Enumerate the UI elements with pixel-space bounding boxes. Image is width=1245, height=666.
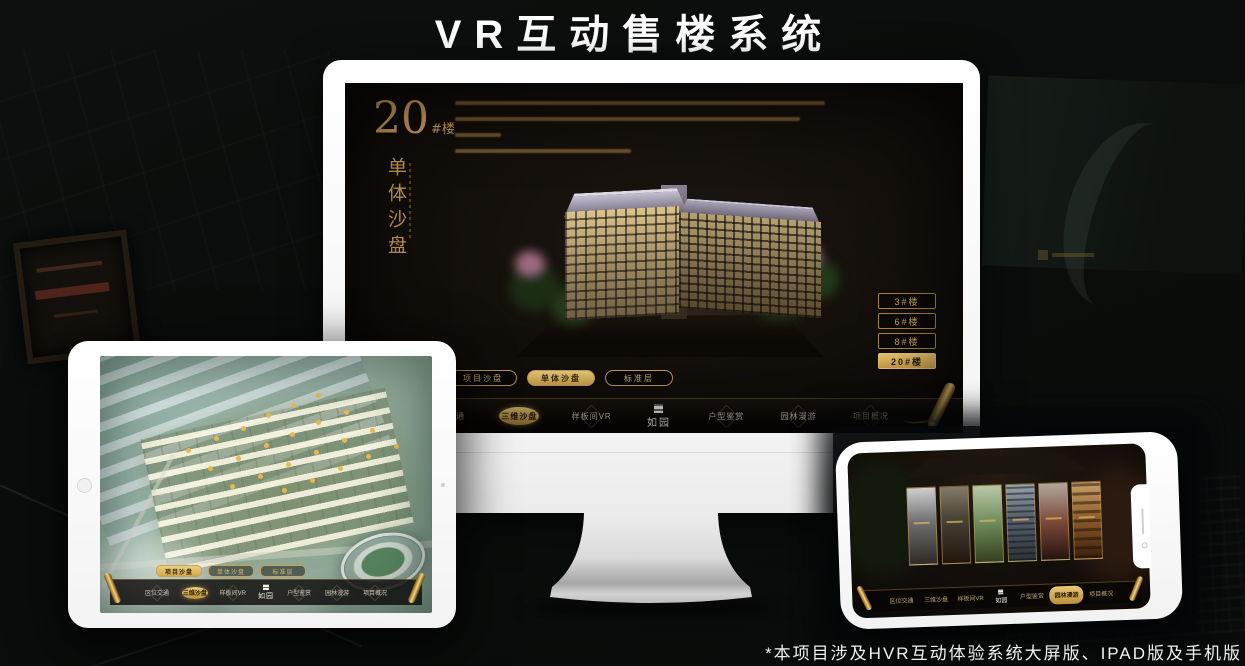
subtab-standard-floor[interactable]: 标准层 bbox=[605, 370, 673, 386]
gallery-panel[interactable] bbox=[1005, 483, 1037, 562]
subtab-single-sandbox[interactable]: 单体沙盘 bbox=[208, 565, 254, 577]
main-nav-bar: 区位交通 三维沙盘 样板间VR 如园 bbox=[860, 580, 1143, 612]
scroll-icon[interactable] bbox=[410, 572, 426, 606]
nav-item-unit-gallery[interactable]: 户型鉴赏 bbox=[694, 401, 758, 431]
nav-item-unit-gallery[interactable]: 户型鉴赏 bbox=[280, 582, 318, 604]
blossom-tree bbox=[515, 251, 545, 277]
building-render bbox=[503, 167, 843, 367]
main-nav-bar: 区位交通 三维沙盘 样板间VR 如园 bbox=[110, 579, 422, 605]
speaker-icon bbox=[1141, 508, 1144, 534]
phone-device: 区位交通 三维沙盘 样板间VR 如园 bbox=[835, 431, 1183, 630]
scroll-icon[interactable] bbox=[858, 585, 873, 613]
scene-gallery bbox=[906, 481, 1103, 566]
nav-item-location[interactable]: 区位交通 bbox=[884, 591, 919, 610]
nav-item-location[interactable]: 区位交通 bbox=[138, 582, 176, 604]
gallery-panel[interactable] bbox=[1038, 482, 1070, 561]
nav-item-3d-sandbox[interactable]: 三维沙盘 bbox=[919, 590, 954, 609]
camera-icon bbox=[1141, 542, 1147, 548]
monitor-stand bbox=[546, 513, 756, 608]
page-title: VR互动售楼系统 bbox=[435, 2, 835, 60]
courtyard-roof-silhouette bbox=[907, 445, 1088, 477]
brand-seal-icon bbox=[999, 589, 1004, 594]
gallery-panel[interactable] bbox=[906, 487, 938, 566]
footnote-text: *本项目涉及HVR互动体验系统大屏版、IPAD版及手机版 bbox=[765, 639, 1242, 664]
stage: VR互动售楼系统 20#楼 单体沙盘 bbox=[0, 0, 1245, 666]
nav-item-garden-roam[interactable]: 园林漫游 bbox=[1049, 585, 1084, 604]
floor-button-6[interactable]: 6#楼 bbox=[878, 313, 936, 329]
nav-item-project-overview[interactable]: 项目概况 bbox=[356, 582, 394, 604]
nav-item-showroom-vr[interactable]: 样板间VR bbox=[953, 588, 988, 607]
brand-seal-icon bbox=[263, 584, 269, 590]
subtab-project-sandbox[interactable]: 项目沙盘 bbox=[449, 370, 517, 386]
nav-item-project-overview[interactable]: 项目概况 bbox=[1084, 584, 1119, 603]
tablet-screen: 项目沙盘 单体沙盘 标准层 区位交通 三维沙盘 样板间VR bbox=[100, 356, 432, 613]
nav-item-3d-sandbox[interactable]: 三维沙盘 bbox=[176, 582, 214, 604]
building-number-suffix: #楼 bbox=[431, 122, 455, 137]
nav-item-garden-roam[interactable]: 园林漫游 bbox=[767, 401, 831, 431]
nav-item-showroom-vr[interactable]: 样板间VR bbox=[560, 401, 624, 431]
subtab-standard-floor[interactable]: 标准层 bbox=[260, 565, 306, 577]
gallery-panel[interactable] bbox=[939, 485, 971, 564]
background-logo-mark bbox=[1038, 250, 1048, 260]
section-title-english-decor bbox=[409, 163, 411, 241]
subtab-single-sandbox[interactable]: 单体沙盘 bbox=[527, 370, 595, 386]
description-text-blurred bbox=[455, 101, 825, 165]
brand-logo[interactable]: 如园 bbox=[988, 589, 1015, 605]
nav-item-garden-roam[interactable]: 园林漫游 bbox=[318, 582, 356, 604]
building-facade bbox=[679, 212, 821, 318]
nav-item-unit-gallery[interactable]: 户型鉴赏 bbox=[1015, 586, 1050, 605]
gallery-panel[interactable] bbox=[1071, 481, 1103, 560]
brand-seal-icon bbox=[654, 404, 663, 413]
sub-tab-group: 项目沙盘 单体沙盘 标准层 bbox=[156, 565, 306, 577]
brand-logo[interactable]: 如园 bbox=[632, 404, 686, 429]
sub-tab-group: 项目沙盘 单体沙盘 标准层 bbox=[449, 370, 673, 386]
building-facade bbox=[565, 206, 679, 320]
nav-item-3d-sandbox[interactable]: 三维沙盘 bbox=[487, 401, 551, 431]
building-number: 20 bbox=[373, 93, 429, 144]
brand-logo[interactable]: 如园 bbox=[252, 584, 280, 601]
scroll-icon[interactable] bbox=[1130, 575, 1145, 603]
building-title: 20#楼 bbox=[373, 97, 455, 141]
home-button[interactable] bbox=[77, 478, 92, 493]
floor-button-group: 3#楼 6#楼 8#楼 20#楼 bbox=[878, 293, 936, 369]
phone-notch bbox=[1130, 484, 1151, 569]
nav-item-showroom-vr[interactable]: 样板间VR bbox=[214, 582, 252, 604]
floor-button-3[interactable]: 3#楼 bbox=[878, 293, 936, 309]
section-title-vertical: 单体沙盘 bbox=[383, 157, 410, 261]
scroll-icon[interactable] bbox=[106, 572, 122, 606]
tablet-device: 项目沙盘 单体沙盘 标准层 区位交通 三维沙盘 样板间VR bbox=[68, 341, 456, 628]
subtab-project-sandbox[interactable]: 项目沙盘 bbox=[156, 565, 202, 577]
floor-button-8[interactable]: 8#楼 bbox=[878, 333, 936, 349]
floor-button-20[interactable]: 20#楼 bbox=[878, 353, 936, 369]
gallery-panel[interactable] bbox=[972, 484, 1004, 563]
phone-screen: 区位交通 三维沙盘 样板间VR 如园 bbox=[847, 443, 1151, 618]
camera-icon bbox=[441, 483, 445, 487]
